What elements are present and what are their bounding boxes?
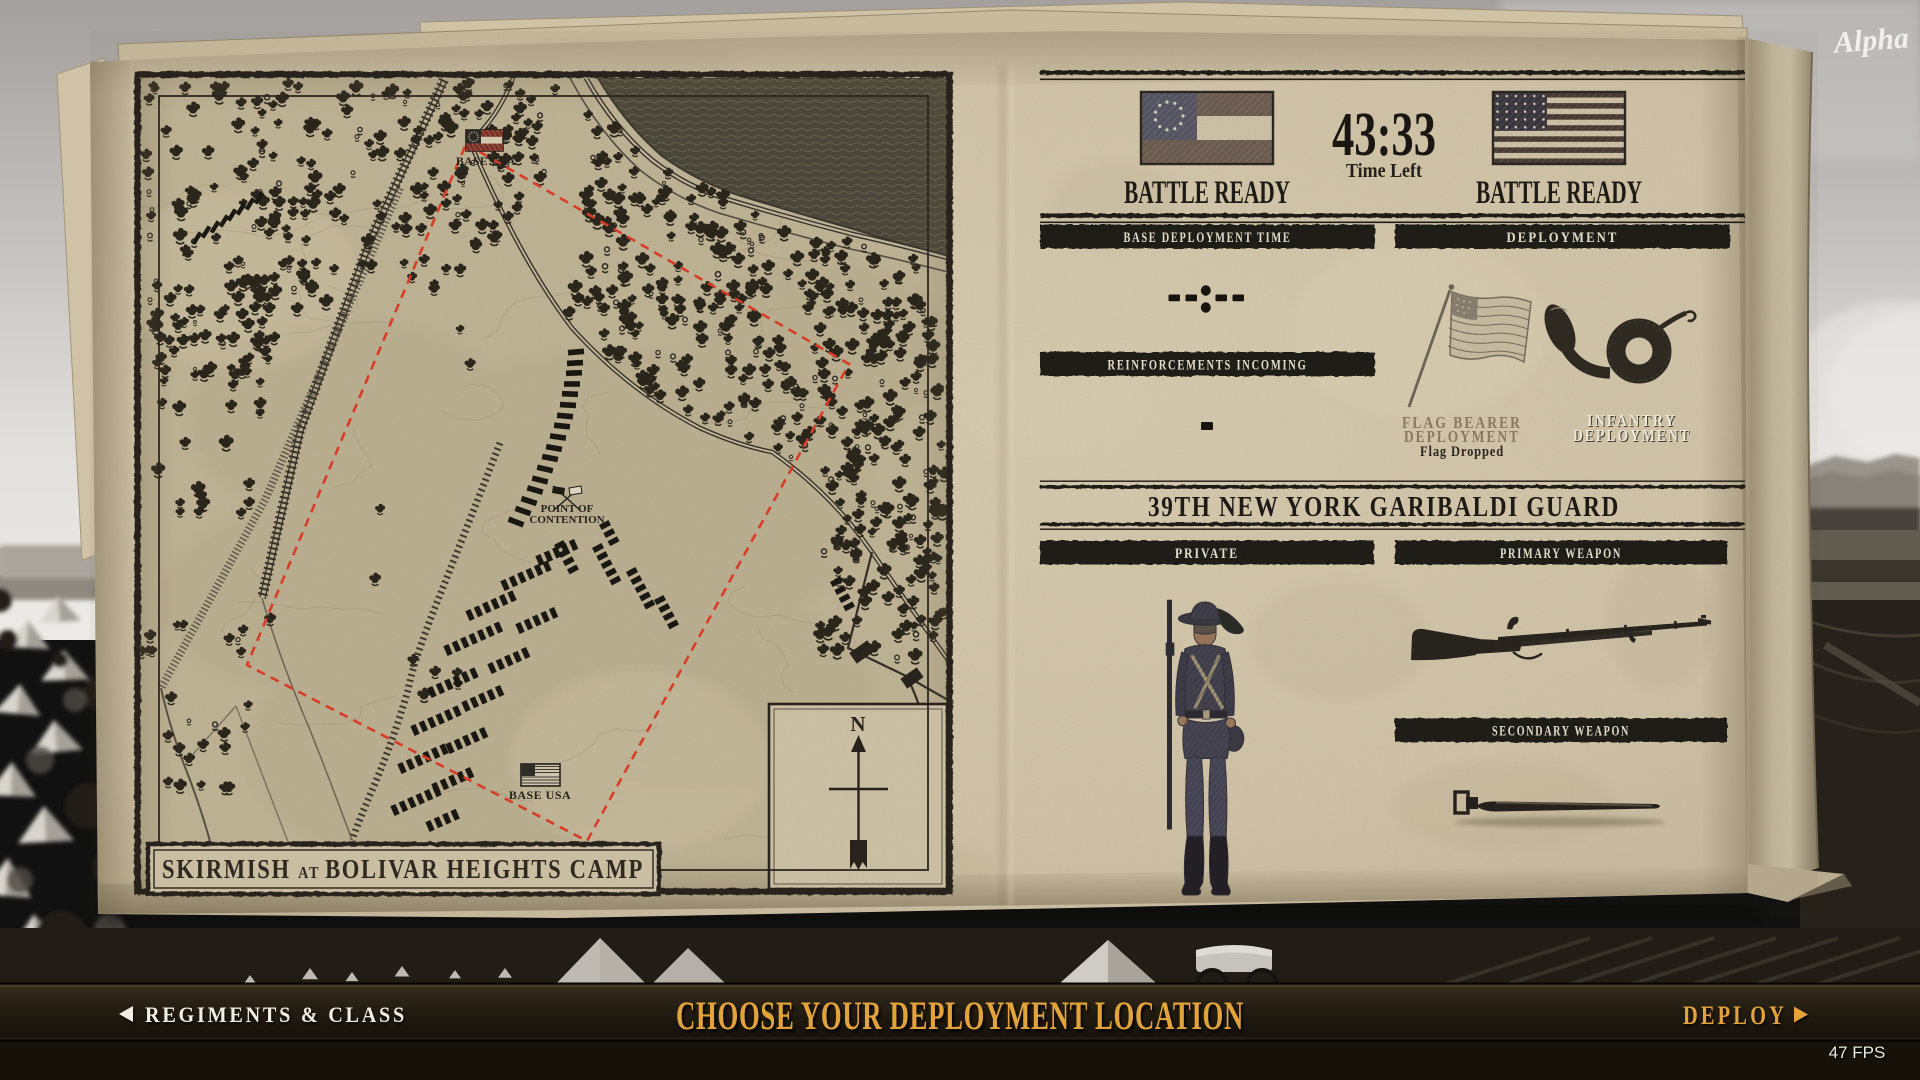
- svg-text:CHOOSE YOUR DEPLOYMENT LOCATIO: CHOOSE YOUR DEPLOYMENT LOCATION: [676, 993, 1244, 1038]
- svg-text:Alpha: Alpha: [1831, 21, 1910, 59]
- svg-text:DEPLOY: DEPLOY: [1683, 1001, 1787, 1030]
- svg-text:REGIMENTS & CLASS: REGIMENTS & CLASS: [145, 1002, 407, 1027]
- svg-text:47 FPS: 47 FPS: [1829, 1043, 1886, 1062]
